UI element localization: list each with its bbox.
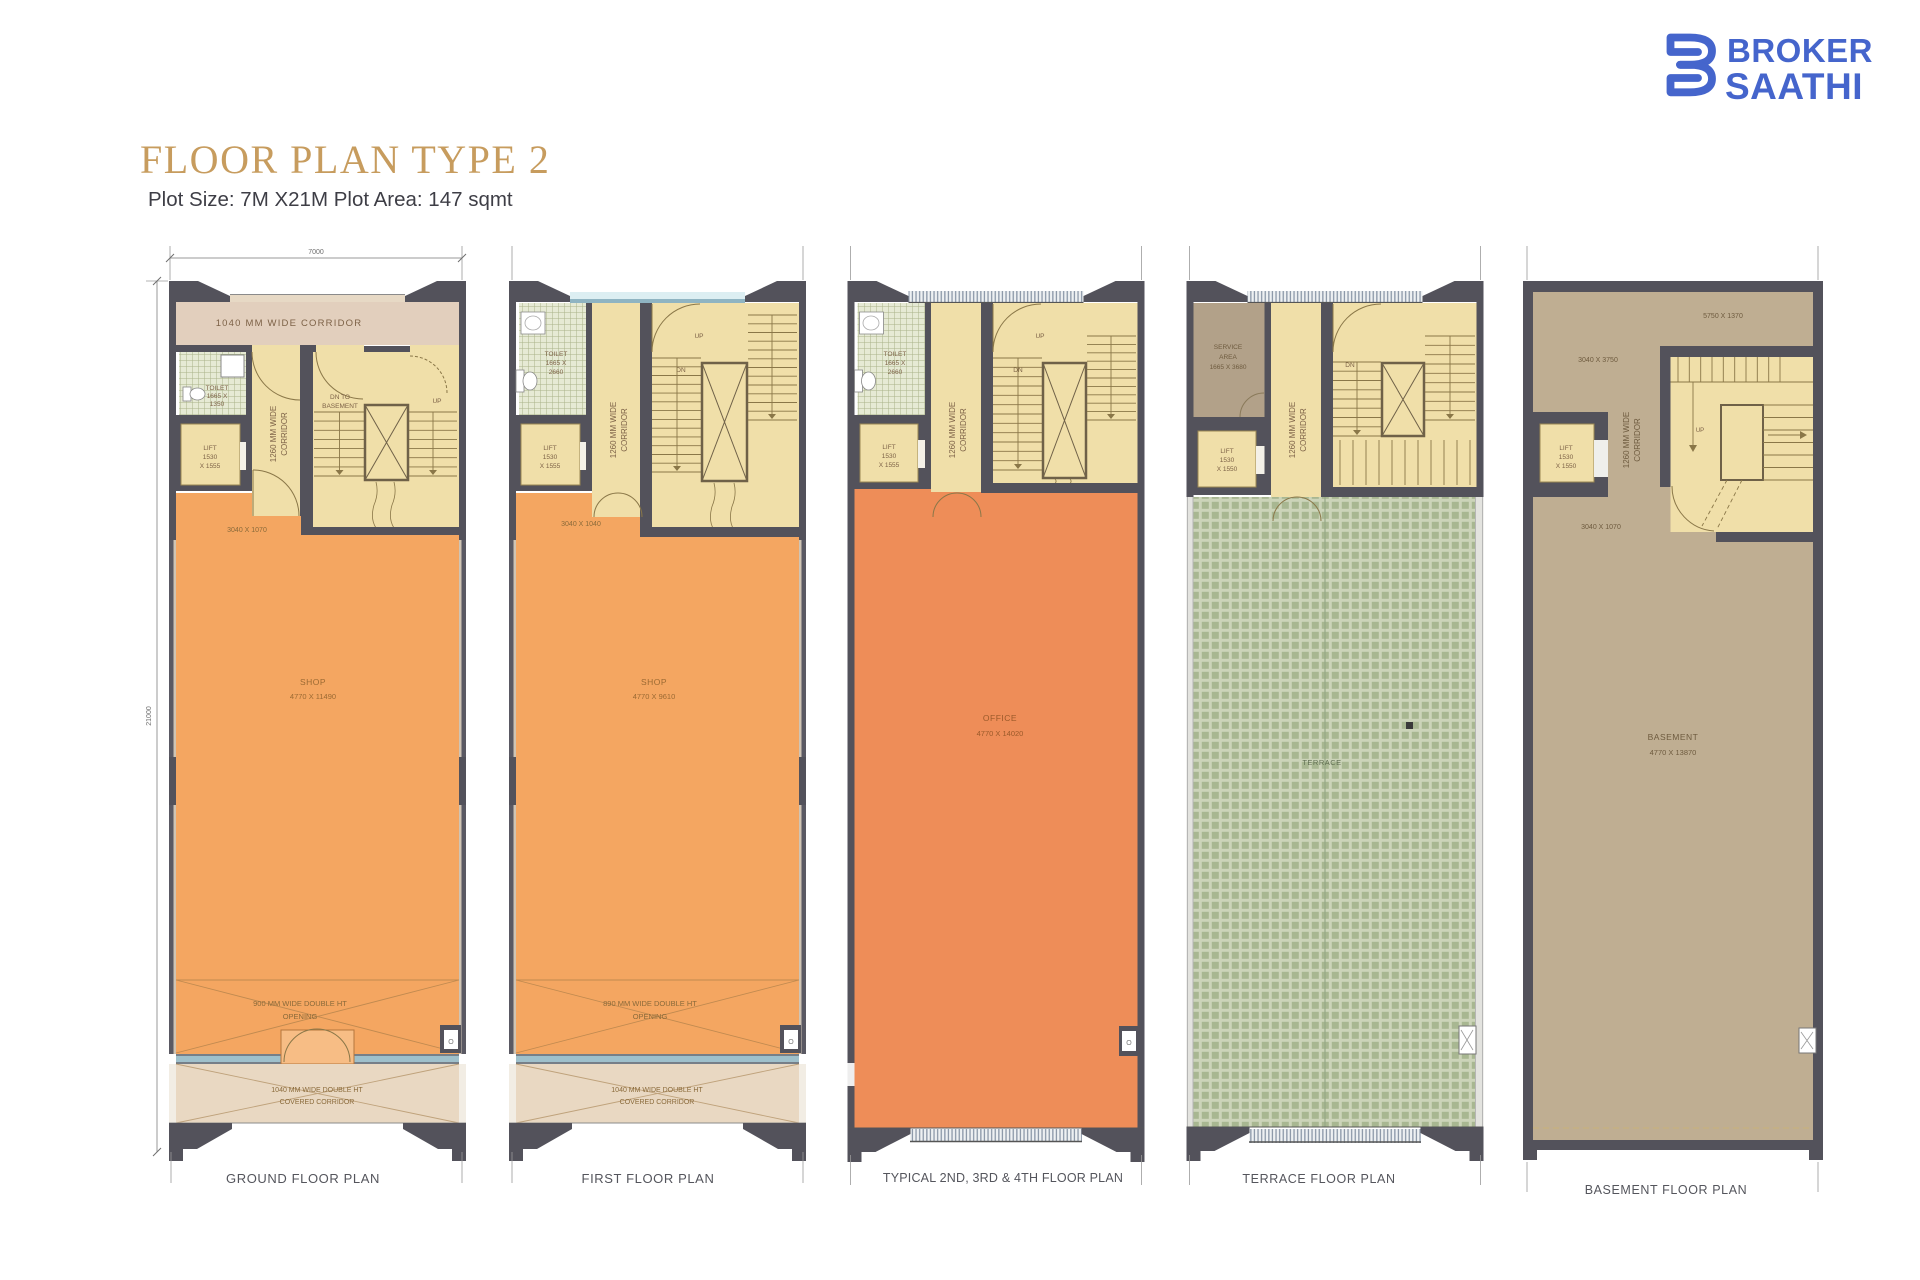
svg-text:2660: 2660 [888, 369, 903, 376]
svg-text:CORRIDOR: CORRIDOR [280, 412, 289, 456]
svg-text:1530: 1530 [1220, 457, 1235, 464]
svg-text:1530: 1530 [203, 454, 218, 461]
svg-text:LIFT: LIFT [1220, 448, 1233, 455]
svg-text:GROUND FLOOR PLAN: GROUND FLOOR PLAN [226, 1171, 380, 1186]
svg-text:X 1550: X 1550 [1217, 466, 1238, 473]
svg-text:1260 MM WIDE: 1260 MM WIDE [948, 402, 957, 458]
svg-text:5750 X 1370: 5750 X 1370 [1703, 313, 1743, 320]
svg-text:4770 X 14020: 4770 X 14020 [977, 729, 1024, 738]
svg-text:X 1550: X 1550 [1556, 463, 1577, 470]
svg-text:21000: 21000 [146, 706, 153, 726]
svg-text:1040 MM WIDE DOUBLE HT: 1040 MM WIDE DOUBLE HT [271, 1087, 363, 1094]
svg-text:O: O [448, 1039, 454, 1046]
svg-text:SHOP: SHOP [300, 677, 326, 687]
svg-text:O: O [1126, 1040, 1132, 1047]
svg-text:CORRIDOR: CORRIDOR [1299, 408, 1308, 452]
svg-text:OFFICE: OFFICE [983, 713, 1017, 723]
svg-text:1350: 1350 [210, 401, 225, 408]
svg-text:X 1555: X 1555 [879, 462, 900, 469]
svg-text:1665 X: 1665 X [207, 393, 228, 400]
svg-text:1260 MM WIDE: 1260 MM WIDE [269, 406, 278, 462]
svg-text:SHOP: SHOP [641, 677, 667, 687]
svg-text:CORRIDOR: CORRIDOR [1633, 418, 1642, 462]
svg-text:1530: 1530 [1559, 454, 1574, 461]
svg-text:LIFT: LIFT [203, 445, 216, 452]
svg-text:DN TO: DN TO [330, 394, 350, 401]
svg-text:TOILET: TOILET [884, 351, 907, 358]
svg-text:TOILET: TOILET [206, 385, 229, 392]
svg-text:3040 X 1040: 3040 X 1040 [561, 521, 601, 528]
svg-text:1665 X: 1665 X [546, 360, 567, 367]
svg-text:1530: 1530 [882, 453, 897, 460]
svg-text:3040 X 1070: 3040 X 1070 [1581, 524, 1621, 531]
svg-text:4770 X 11490: 4770 X 11490 [290, 692, 336, 701]
svg-text:UP: UP [694, 333, 703, 340]
svg-text:LIFT: LIFT [543, 445, 556, 452]
svg-text:TERRACE: TERRACE [1302, 758, 1341, 767]
svg-text:LIFT: LIFT [1559, 445, 1572, 452]
svg-text:1260 MM WIDE: 1260 MM WIDE [609, 402, 618, 458]
svg-text:2660: 2660 [549, 369, 564, 376]
svg-text:1665 X: 1665 X [885, 360, 906, 367]
svg-text:COVERED CORRIDOR: COVERED CORRIDOR [280, 1099, 355, 1106]
svg-text:X 1555: X 1555 [200, 463, 221, 470]
svg-text:DN: DN [1345, 362, 1355, 369]
svg-text:DN: DN [676, 367, 686, 374]
svg-text:LIFT: LIFT [882, 444, 895, 451]
svg-text:1260 MM WIDE: 1260 MM WIDE [1622, 412, 1631, 468]
svg-text:SERVICE: SERVICE [1214, 344, 1243, 351]
svg-text:BASEMENT: BASEMENT [322, 403, 358, 410]
svg-text:TERRACE FLOOR PLAN: TERRACE FLOOR PLAN [1242, 1172, 1395, 1186]
svg-text:7000: 7000 [308, 249, 324, 256]
svg-text:OPENING: OPENING [633, 1012, 668, 1021]
svg-text:X 1555: X 1555 [540, 463, 561, 470]
svg-text:1530: 1530 [543, 454, 558, 461]
svg-text:COVERED CORRIDOR: COVERED CORRIDOR [620, 1099, 695, 1106]
svg-text:TYPICAL 2ND, 3RD & 4TH FLOOR P: TYPICAL 2ND, 3RD & 4TH FLOOR PLAN [883, 1171, 1123, 1185]
svg-text:BASEMENT: BASEMENT [1648, 732, 1699, 742]
svg-text:890 MM WIDE DOUBLE HT: 890 MM WIDE DOUBLE HT [603, 999, 697, 1008]
svg-text:1260 MM WIDE: 1260 MM WIDE [1288, 402, 1297, 458]
svg-text:3040 X 1070: 3040 X 1070 [227, 527, 267, 534]
svg-text:CORRIDOR: CORRIDOR [959, 408, 968, 452]
svg-text:OPENING: OPENING [283, 1012, 318, 1021]
svg-text:900 MM WIDE DOUBLE HT: 900 MM WIDE DOUBLE HT [253, 999, 347, 1008]
svg-text:4770 X 9610: 4770 X 9610 [633, 692, 676, 701]
svg-text:CORRIDOR: CORRIDOR [620, 408, 629, 452]
svg-text:O: O [788, 1039, 794, 1046]
svg-text:UP: UP [432, 398, 441, 405]
svg-text:1665 X 3680: 1665 X 3680 [1210, 364, 1247, 371]
svg-text:1040 MM WIDE CORRIDOR: 1040 MM WIDE CORRIDOR [216, 318, 363, 329]
svg-text:BASEMENT FLOOR PLAN: BASEMENT FLOOR PLAN [1585, 1183, 1748, 1197]
svg-text:UP: UP [1035, 333, 1044, 340]
svg-text:AREA: AREA [1219, 354, 1237, 361]
svg-text:3040 X 3750: 3040 X 3750 [1578, 357, 1618, 364]
svg-text:TOILET: TOILET [545, 351, 568, 358]
svg-text:FIRST FLOOR PLAN: FIRST FLOOR PLAN [582, 1171, 715, 1186]
svg-text:UP: UP [1696, 428, 1704, 434]
svg-text:1040 MM WIDE DOUBLE HT: 1040 MM WIDE DOUBLE HT [611, 1087, 703, 1094]
svg-text:4770 X 13870: 4770 X 13870 [1650, 748, 1697, 757]
